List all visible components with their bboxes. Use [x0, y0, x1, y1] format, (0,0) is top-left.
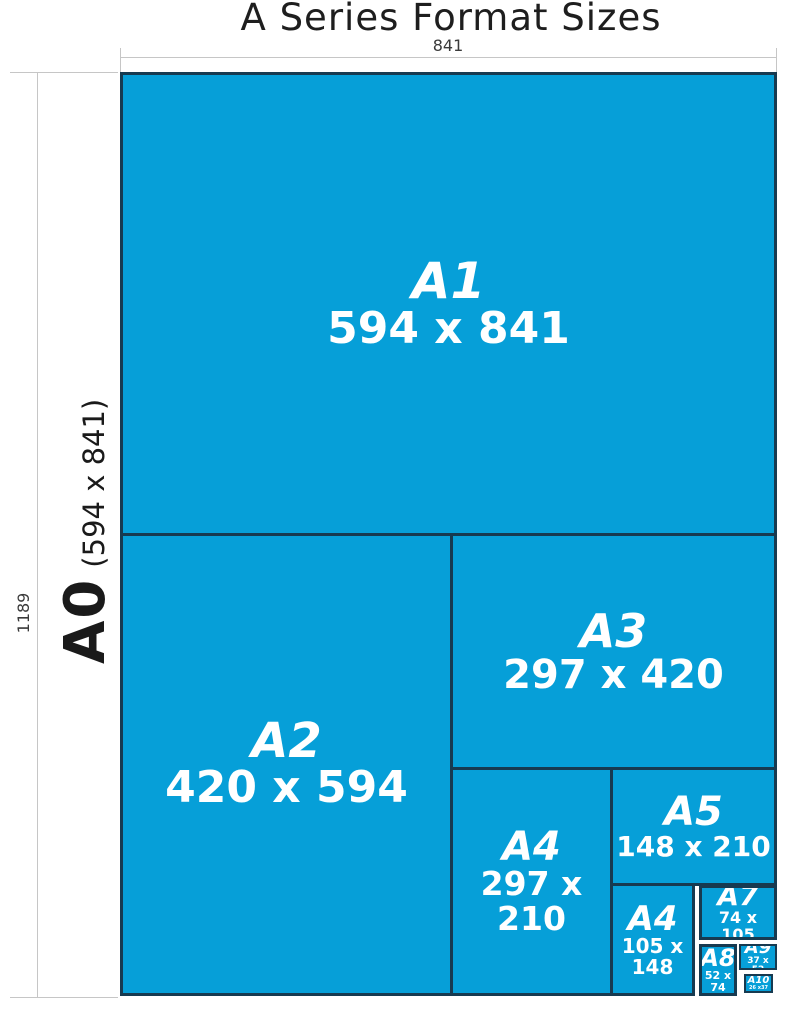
width-dimension-line: [120, 57, 777, 58]
width-dimension-tick-left: [120, 48, 121, 72]
box-a7: A7 74 x 105: [699, 885, 777, 940]
a0-name: A0: [53, 578, 118, 664]
box-a4-label: A4: [502, 827, 561, 867]
box-a2-label: A2: [251, 717, 322, 765]
width-dimension-tick-right: [776, 48, 777, 72]
width-dimension-label: 841: [398, 36, 498, 55]
box-a5-label: A5: [664, 792, 723, 832]
box-a9-size: 37 x 52: [741, 957, 775, 970]
box-a10: A10 26 x37: [744, 974, 773, 993]
height-dimension-line: [37, 72, 38, 998]
a-series-diagram: A Series Format Sizes 841 1189 A0(594 x …: [0, 0, 807, 1030]
box-a9-label: A9: [745, 944, 771, 957]
box-a8: A8 52 x 74: [699, 944, 737, 996]
box-a6-label: A4: [628, 902, 678, 936]
box-a3-label: A3: [580, 608, 648, 654]
box-a4-size: 297 x 210: [453, 867, 610, 936]
box-a5-size: 148 x 210: [616, 832, 770, 861]
box-a10-size: 26 x37: [749, 986, 768, 991]
box-a7-size: 74 x 105: [702, 910, 774, 940]
sheet-area: A1 594 x 841 A2 420 x 594 A3 297 x 420 A…: [120, 72, 777, 996]
box-a1: A1 594 x 841: [120, 72, 777, 536]
box-a1-label: A1: [412, 256, 486, 306]
box-a6-size: 105 x 148: [613, 936, 692, 978]
box-a7-label: A7: [717, 885, 758, 910]
a0-label: A0(594 x 841): [51, 404, 121, 664]
box-a2: A2 420 x 594: [120, 533, 453, 996]
box-a8-label: A8: [700, 946, 735, 970]
box-a2-size: 420 x 594: [165, 765, 408, 811]
box-a3-size: 297 x 420: [503, 654, 724, 696]
box-a6: A4 105 x 148: [610, 883, 695, 996]
box-a5: A5 148 x 210: [610, 767, 777, 886]
box-a1-size: 594 x 841: [327, 306, 570, 352]
height-dimension-label: 1189: [14, 556, 34, 670]
height-dimension-tick-bottom: [10, 997, 118, 998]
height-dimension-tick-top: [10, 72, 118, 73]
a0-size: (594 x 841): [77, 399, 111, 568]
box-a8-size: 52 x 74: [702, 970, 734, 993]
box-a4: A4 297 x 210: [450, 767, 613, 996]
box-a3: A3 297 x 420: [450, 533, 777, 770]
page-title: A Series Format Sizes: [96, 0, 806, 39]
box-a9: A9 37 x 52: [739, 944, 777, 970]
